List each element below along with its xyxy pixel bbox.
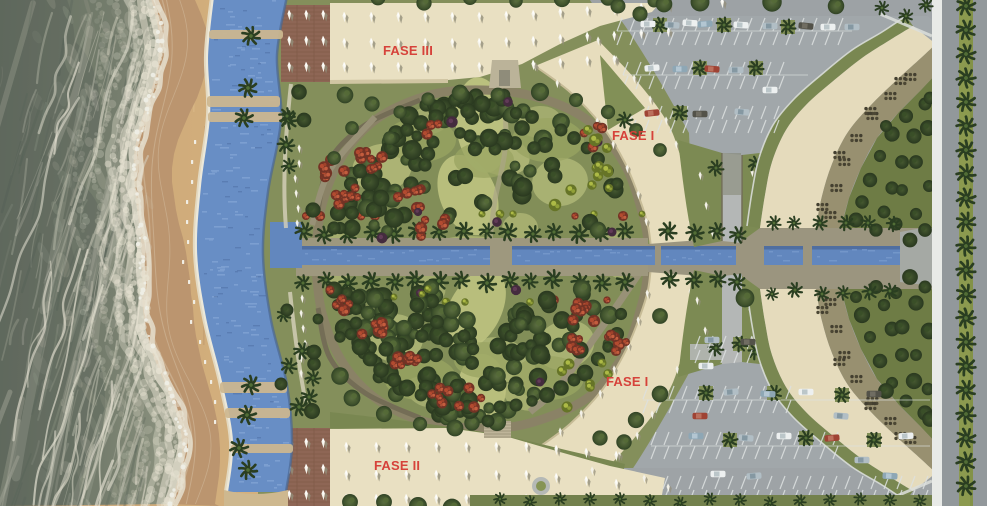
svg-text:FASE I: FASE I — [606, 374, 648, 389]
svg-text:FASE III: FASE III — [383, 43, 433, 58]
svg-text:FASE I: FASE I — [612, 128, 654, 143]
svg-text:FASE II: FASE II — [374, 458, 420, 473]
